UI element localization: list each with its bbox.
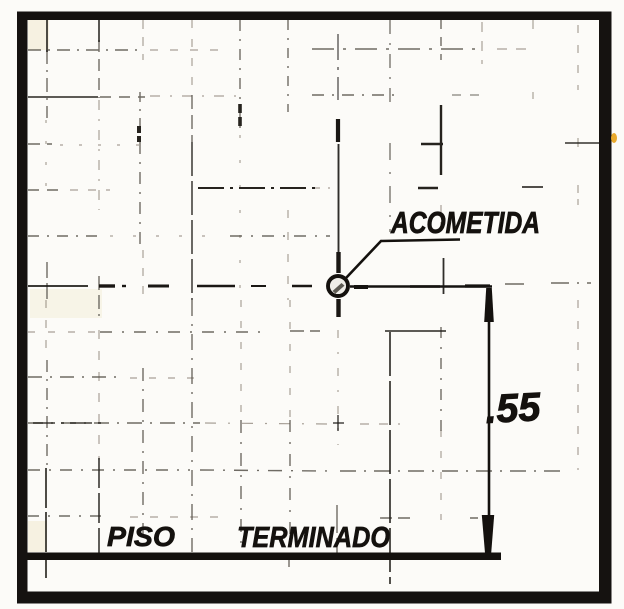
svg-text:.55: .55 [484, 385, 542, 432]
svg-text:TERMINADO: TERMINADO [237, 522, 390, 554]
svg-text:ACOMETIDA: ACOMETIDA [390, 205, 540, 240]
svg-text:PISO: PISO [107, 521, 175, 552]
